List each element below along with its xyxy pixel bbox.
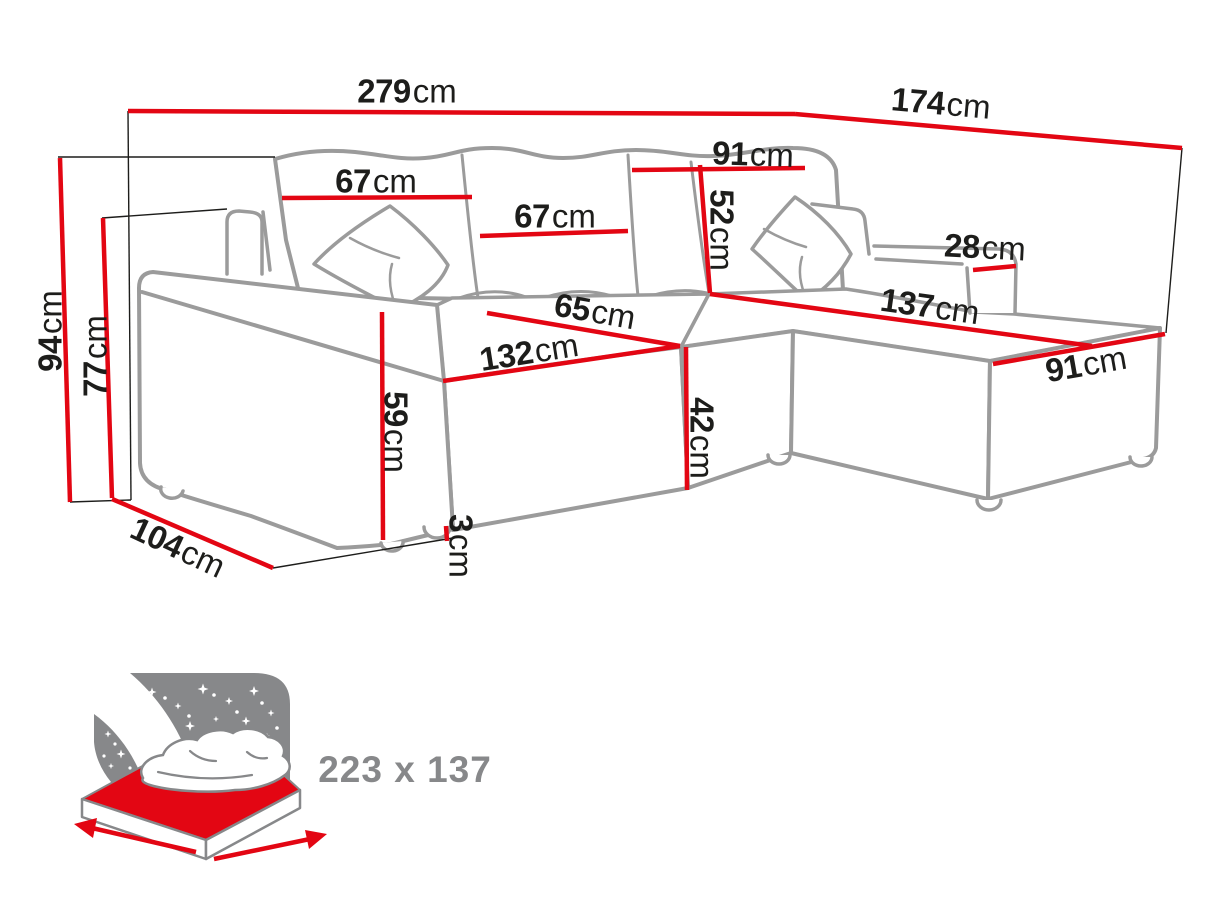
dim-unit: cm [32,290,69,334]
dim-unit: cm [933,288,982,331]
dim-value: 77 [77,361,114,397]
dim-label-seat-height: 42cm [686,397,719,479]
dim-value: 3 [443,514,480,532]
dim-label-backrest-height: 52cm [706,189,739,271]
dim-line-overall-width [128,111,795,114]
sofa-sketch-canvas [0,0,1214,911]
dim-unit: cm [378,429,415,473]
dim-unit: cm [413,73,457,110]
dim-value: 67 [335,163,371,200]
dim-label-back-height: 77cm [79,315,112,397]
duvet-icon [141,729,289,792]
dim-unit: cm [589,292,639,336]
dim-label-foot-height: 3cm [445,514,478,578]
dim-value: 91 [1043,347,1085,390]
dim-unit: cm [443,534,480,578]
dim-value: 279 [357,73,411,110]
dim-unit: cm [1080,339,1130,383]
dim-label-overall-width: 279cm [357,75,457,108]
dim-value: 65 [552,286,594,329]
dim-label-overall-depth: 174cm [890,82,992,124]
dim-value: 137 [878,281,936,325]
dim-value: 42 [684,397,721,433]
dim-value: 67 [514,198,550,235]
dim-unit: cm [945,85,992,126]
dim-value: 59 [378,391,415,427]
sleep-function-bed-icon [74,673,327,859]
dim-unit: cm [704,227,741,271]
dim-value: 52 [704,189,741,225]
dim-unit: cm [77,315,114,359]
dim-label-mid-back-cushion-width: 67cm [514,200,596,233]
dim-unit: cm [532,326,581,369]
dim-unit: cm [749,135,794,174]
sofa-dimension-diagram: 279cm 174cm 91cm 67cm 67cm 52cm 28cm 137… [0,0,1214,911]
dim-value: 94 [32,336,69,372]
chaise-front-face [791,331,990,499]
dim-unit: cm [552,198,596,235]
dim-unit: cm [684,435,721,479]
sleeping-area-size-label: 223 x 137 [318,749,492,791]
dim-label-chaise-armrest-width: 28cm [943,228,1026,265]
dim-label-left-back-cushion-width: 67cm [335,165,417,198]
dim-value: 91 [712,134,749,172]
dim-label-corner-backrest-width: 91cm [712,136,795,172]
dim-label-armrest-front-height: 59cm [380,391,413,473]
dim-unit: cm [373,163,417,200]
dim-value: 28 [943,226,981,265]
dim-value: 174 [890,80,947,122]
dim-label-overall-height: 94cm [34,290,67,372]
dim-unit: cm [981,228,1027,267]
